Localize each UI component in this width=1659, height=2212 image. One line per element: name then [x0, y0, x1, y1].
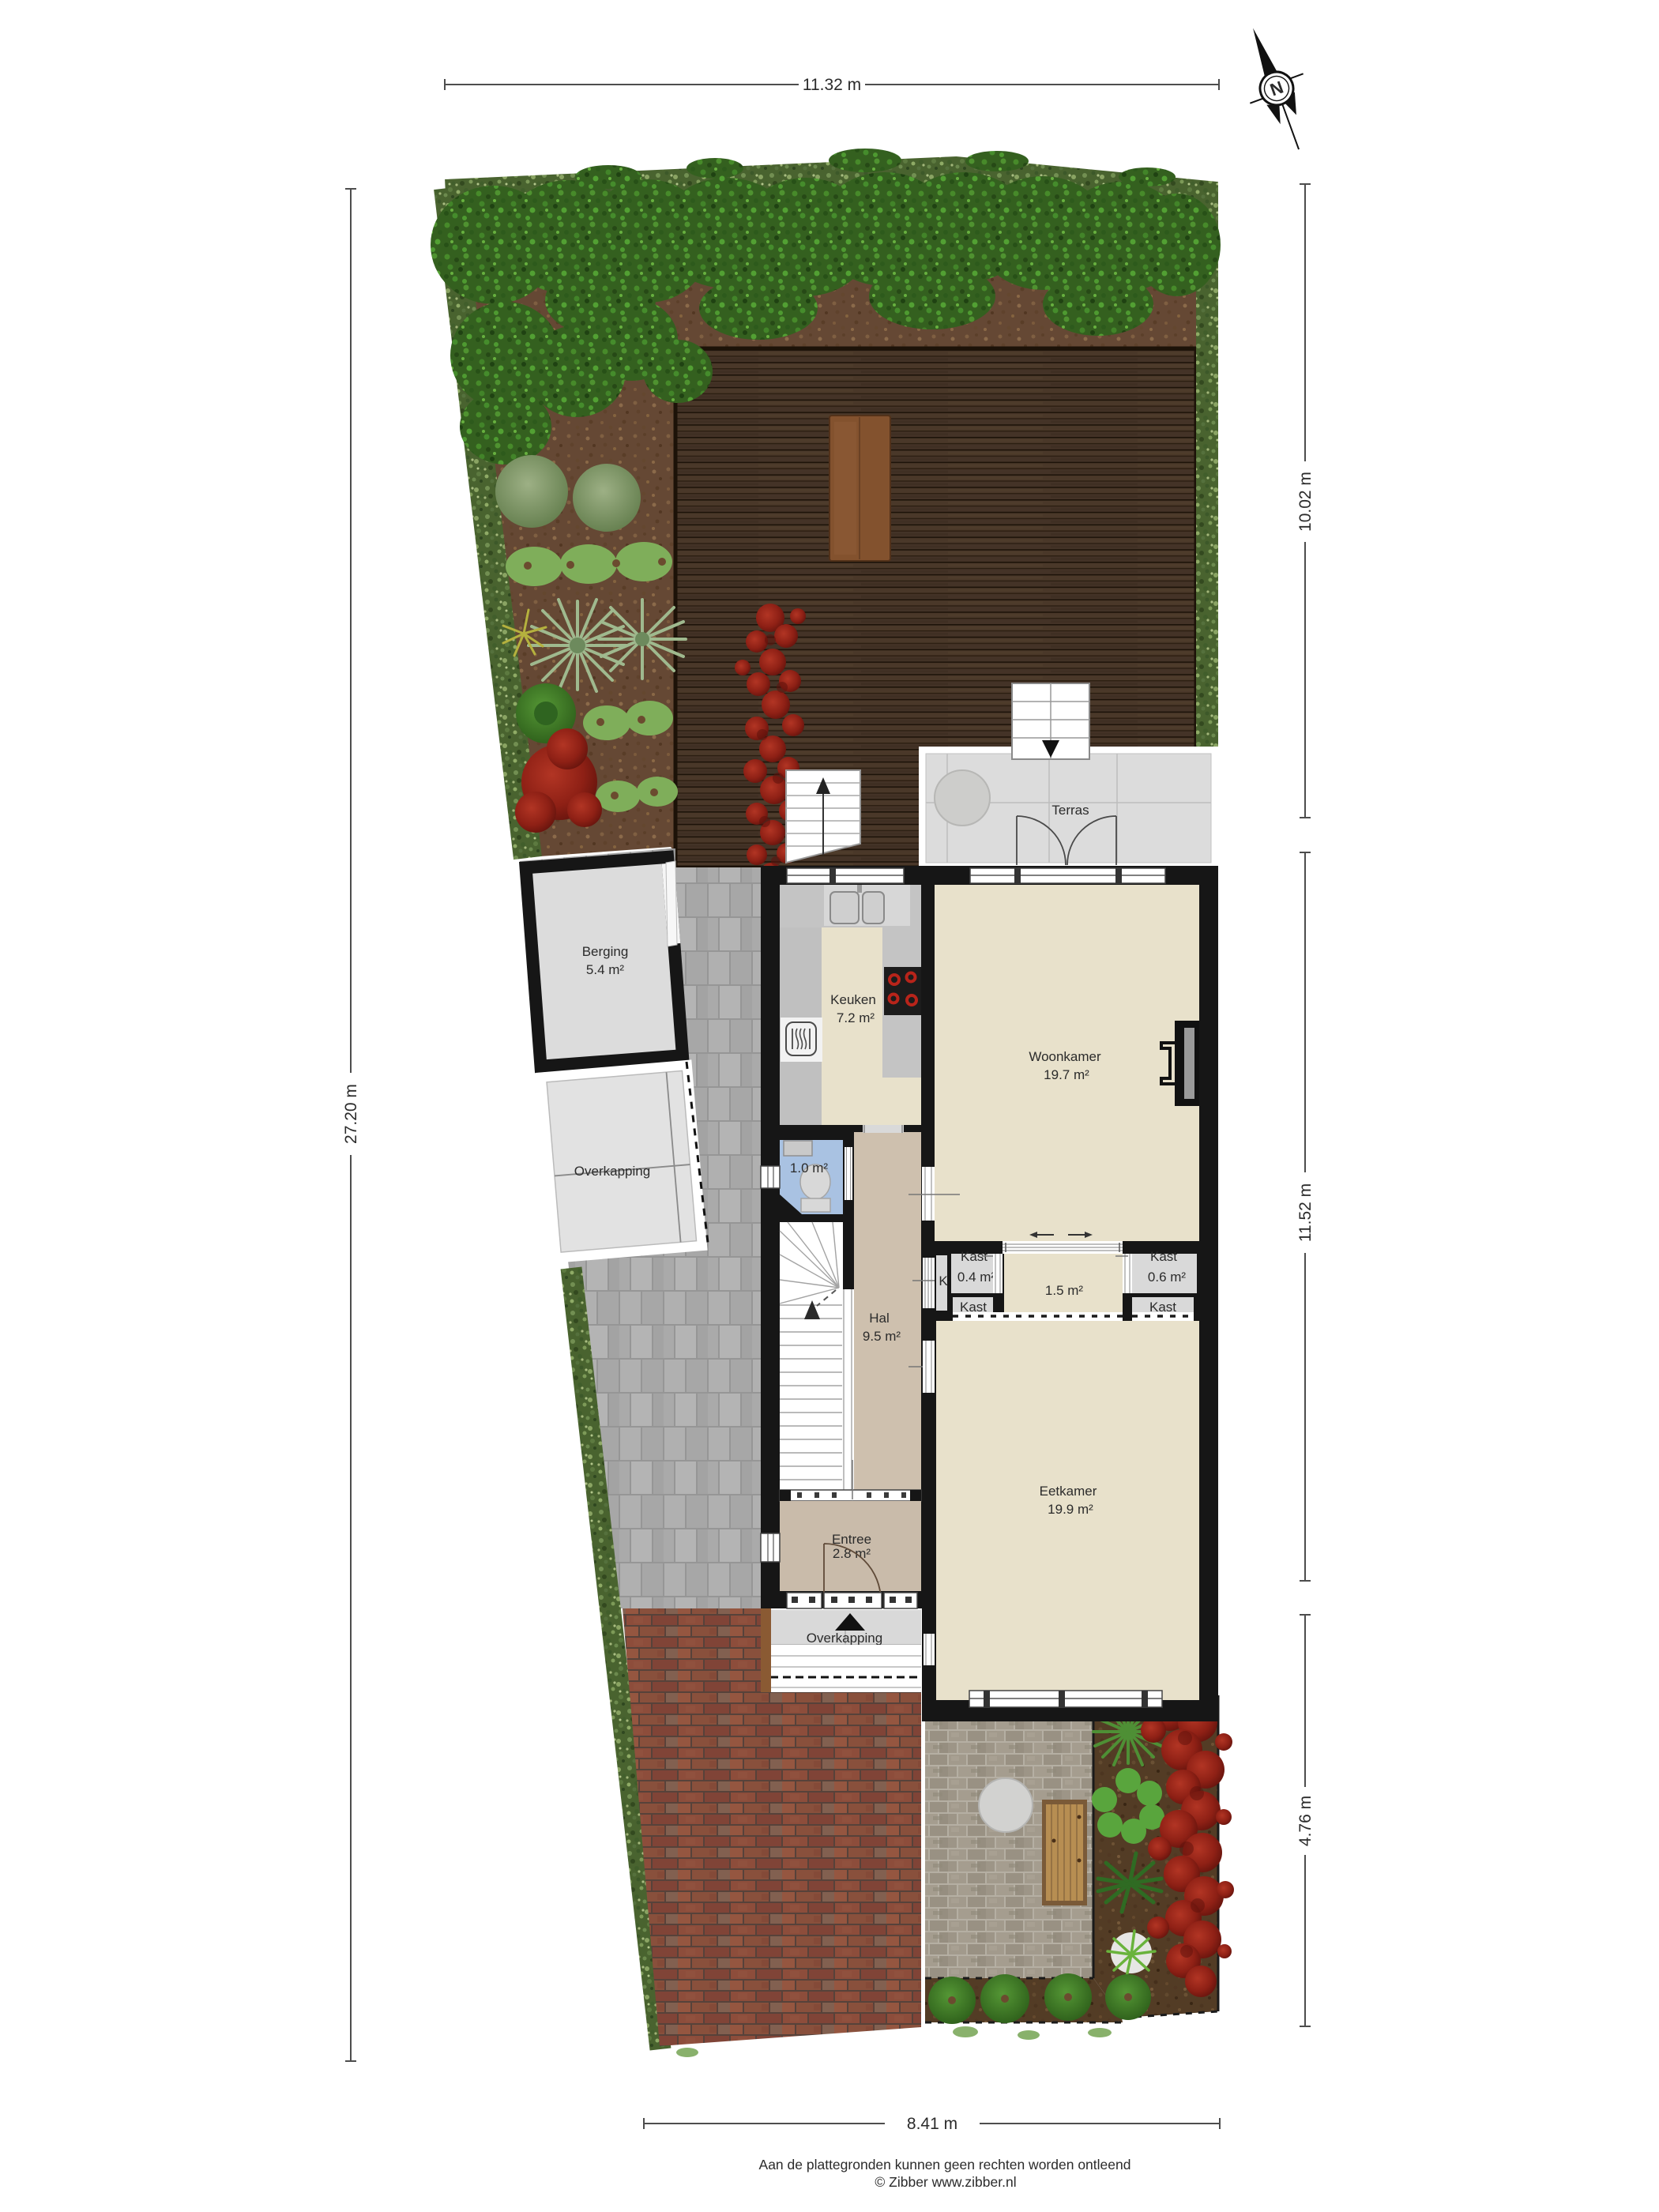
svg-text:Aan de plattegronden kunnen ge: Aan de plattegronden kunnen geen rechten… — [759, 2157, 1131, 2172]
svg-text:19.9 m²: 19.9 m² — [1048, 1502, 1093, 1517]
svg-text:Overkapping: Overkapping — [574, 1164, 650, 1179]
svg-text:7.2 m²: 7.2 m² — [837, 1010, 875, 1025]
svg-text:Keuken: Keuken — [830, 992, 876, 1007]
svg-text:Terras: Terras — [1051, 803, 1089, 818]
svg-text:8.41 m: 8.41 m — [907, 2115, 957, 2133]
svg-text:Berging: Berging — [582, 944, 629, 959]
svg-text:5.4 m²: 5.4 m² — [586, 962, 625, 977]
svg-text:© Zibber www.zibber.nl: © Zibber www.zibber.nl — [875, 2174, 1016, 2190]
svg-text:11.52 m: 11.52 m — [1296, 1183, 1315, 1242]
svg-text:Woonkamer: Woonkamer — [1029, 1049, 1101, 1064]
svg-text:Overkapping: Overkapping — [807, 1631, 882, 1646]
svg-text:11.32 m: 11.32 m — [803, 76, 861, 94]
svg-text:9.5 m²: 9.5 m² — [863, 1329, 901, 1344]
svg-text:K: K — [939, 1273, 948, 1288]
svg-text:Kast: Kast — [1150, 1249, 1177, 1264]
svg-text:4.76 m: 4.76 m — [1296, 1796, 1315, 1846]
svg-text:Eetkamer: Eetkamer — [1040, 1484, 1097, 1499]
svg-text:10.02 m: 10.02 m — [1296, 472, 1315, 532]
svg-text:1.5 m²: 1.5 m² — [1045, 1283, 1084, 1298]
svg-text:27.20 m: 27.20 m — [342, 1084, 360, 1144]
svg-text:2.8 m²: 2.8 m² — [833, 1546, 871, 1561]
svg-text:19.7 m²: 19.7 m² — [1044, 1067, 1089, 1082]
svg-text:Hal: Hal — [869, 1311, 890, 1326]
svg-text:1.0 m²: 1.0 m² — [790, 1161, 829, 1176]
svg-text:0.4 m²: 0.4 m² — [957, 1270, 996, 1285]
svg-text:0.6 m²: 0.6 m² — [1148, 1270, 1187, 1285]
